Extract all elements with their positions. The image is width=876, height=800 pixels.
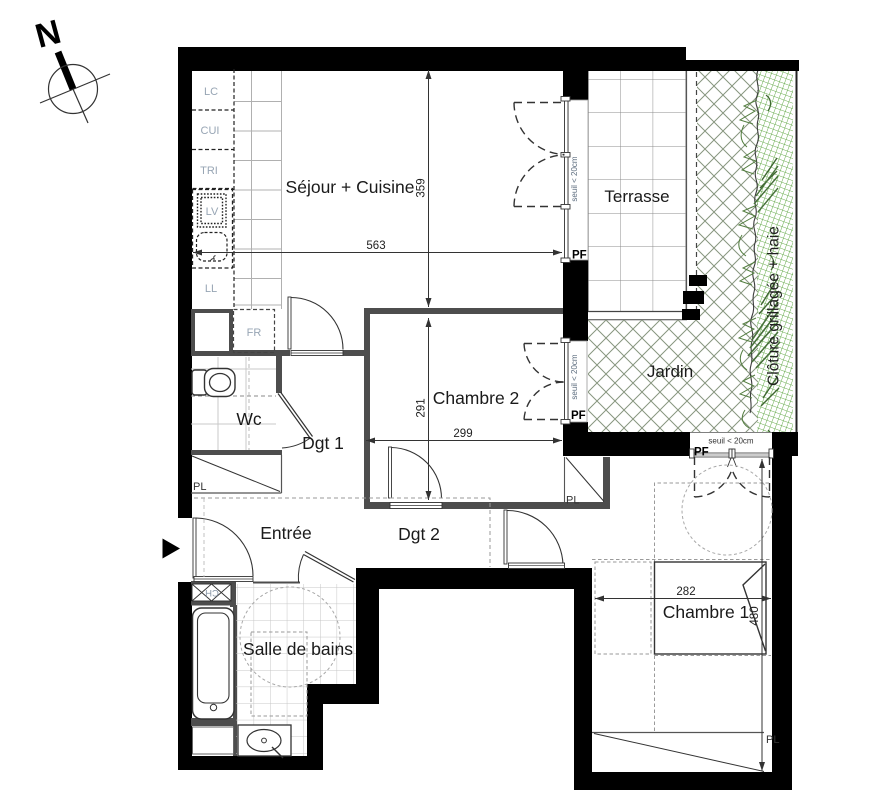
svg-text:Séjour + Cuisine: Séjour + Cuisine [286,177,415,197]
svg-text:Clôture grillagée + haie: Clôture grillagée + haie [766,226,783,386]
svg-text:PF: PF [694,447,709,459]
svg-text:PL: PL [193,481,206,493]
svg-text:Dgt 2: Dgt 2 [398,524,440,544]
svg-text:CH: CH [205,587,219,598]
svg-text:359: 359 [416,178,428,197]
svg-text:CUI: CUI [201,125,220,137]
svg-text:282: 282 [676,586,695,598]
svg-text:299: 299 [453,428,472,440]
svg-text:563: 563 [366,240,385,252]
svg-text:Chambre 2: Chambre 2 [433,388,520,408]
svg-text:Entrée: Entrée [260,523,312,543]
svg-text:seuil < 20cm: seuil < 20cm [570,156,579,201]
svg-text:PF: PF [572,250,587,262]
svg-text:LV: LV [206,206,219,218]
svg-text:LL: LL [205,283,217,295]
svg-text:PL: PL [566,495,579,507]
svg-text:LC: LC [204,86,218,98]
svg-text:Chambre 1: Chambre 1 [663,602,750,622]
svg-text:291: 291 [416,398,428,417]
svg-text:Dgt 1: Dgt 1 [302,433,344,453]
svg-text:Jardin: Jardin [647,362,693,381]
svg-text:TRI: TRI [200,165,218,177]
svg-text:FR: FR [247,327,262,339]
svg-text:480: 480 [749,606,761,625]
svg-text:Salle de bains: Salle de bains [243,639,353,659]
svg-text:seuil < 20cm: seuil < 20cm [708,437,753,446]
svg-text:Terrasse: Terrasse [604,187,669,206]
svg-text:PL: PL [766,734,779,746]
svg-text:seuil < 20cm: seuil < 20cm [570,354,579,399]
svg-text:Wc: Wc [236,409,262,429]
svg-text:PF: PF [571,410,586,422]
